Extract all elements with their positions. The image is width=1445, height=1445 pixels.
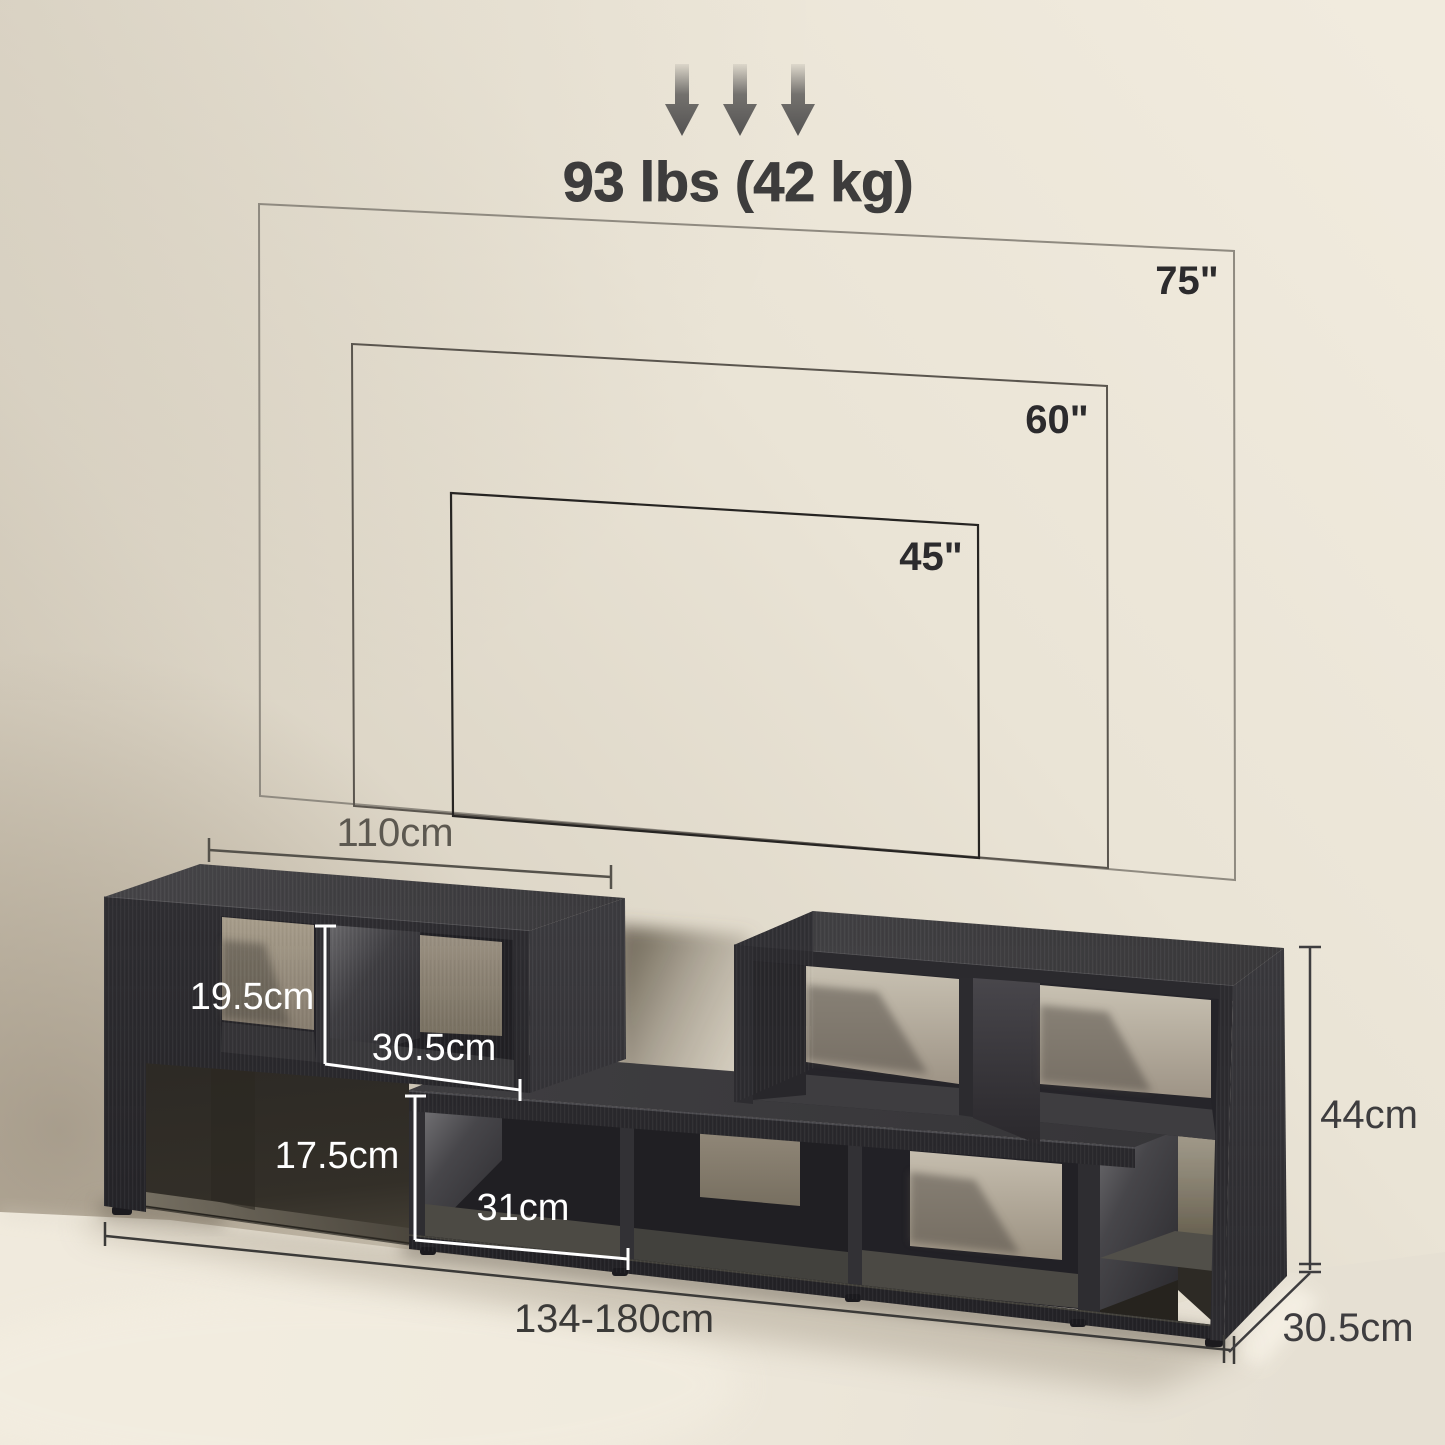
svg-text:30.5cm: 30.5cm (372, 1027, 497, 1069)
svg-text:60": 60" (1025, 398, 1088, 442)
svg-text:75": 75" (1155, 259, 1218, 303)
svg-text:30.5cm: 30.5cm (1282, 1306, 1413, 1350)
svg-text:17.5cm: 17.5cm (275, 1135, 400, 1177)
svg-text:110cm: 110cm (336, 811, 453, 855)
svg-text:134-180cm: 134-180cm (514, 1297, 714, 1341)
svg-text:44cm: 44cm (1320, 1093, 1418, 1137)
svg-text:19.5cm: 19.5cm (190, 976, 315, 1018)
svg-text:45": 45" (899, 535, 962, 579)
svg-text:31cm: 31cm (477, 1187, 570, 1229)
svg-text:93 lbs (42 kg): 93 lbs (42 kg) (563, 150, 914, 213)
